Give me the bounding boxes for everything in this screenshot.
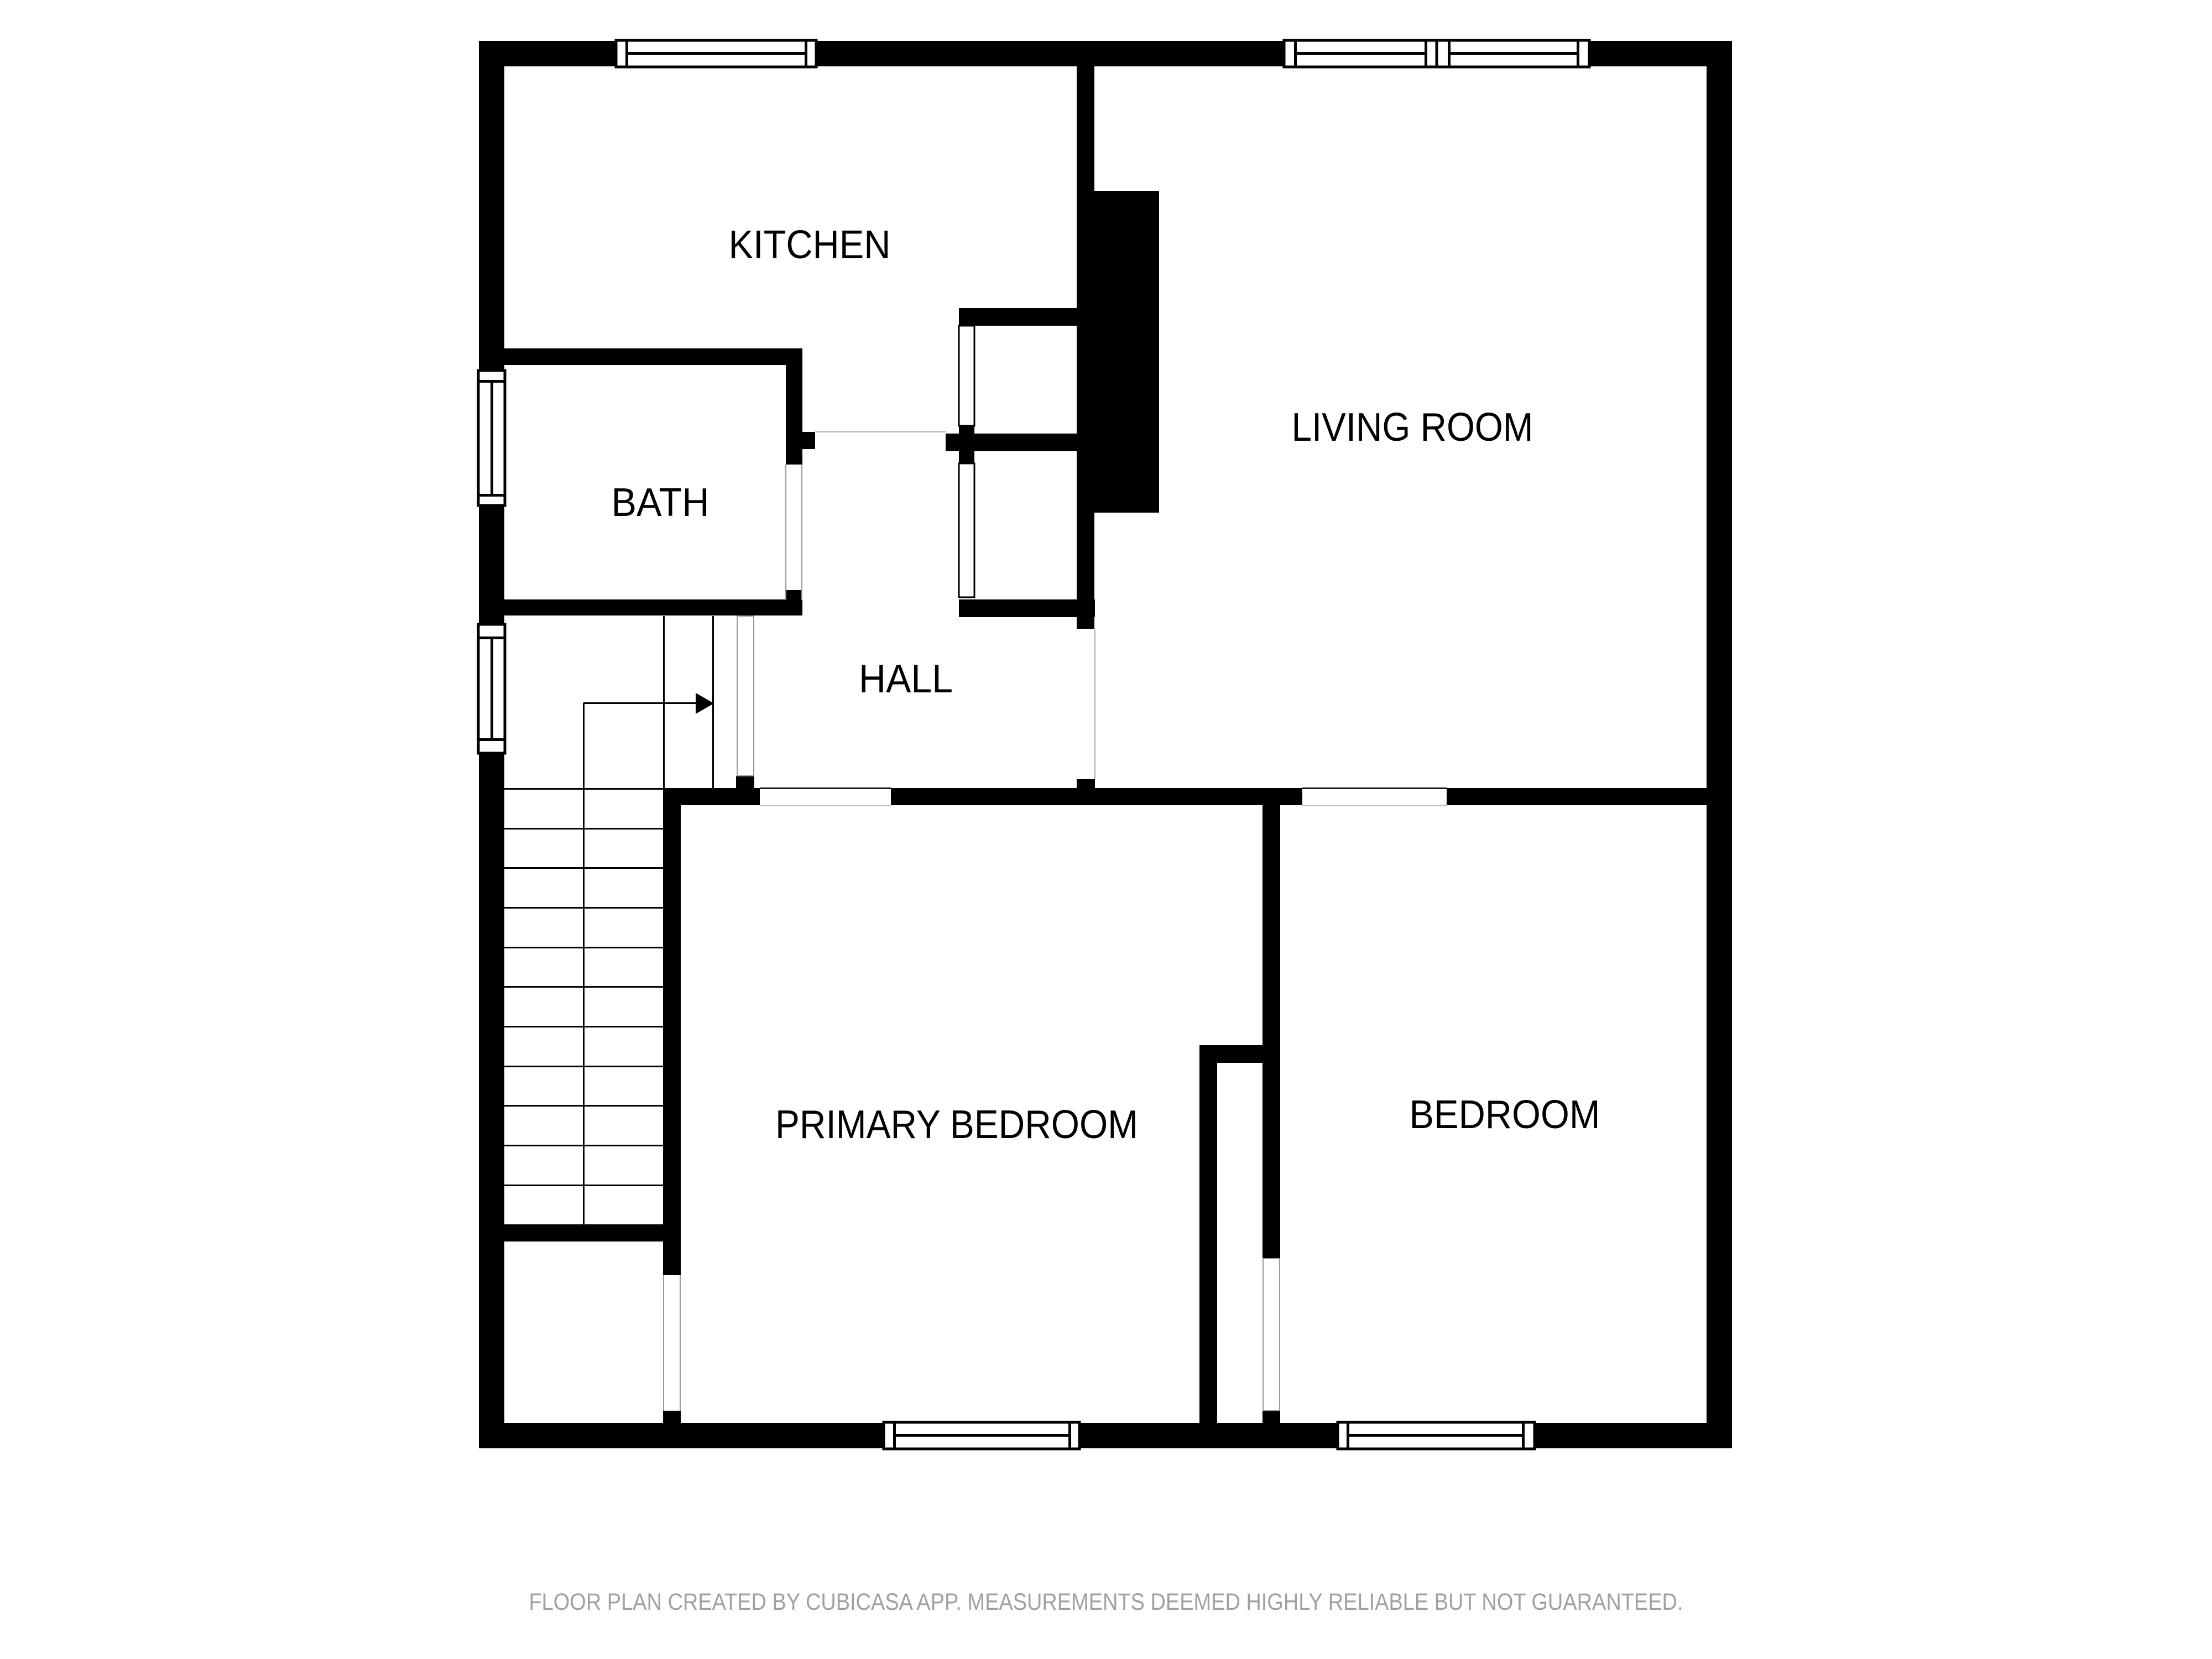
svg-text:BEDROOM: BEDROOM [1410,1093,1600,1137]
svg-text:KITCHEN: KITCHEN [729,223,891,267]
svg-text:FLOOR PLAN CREATED BY CUBICASA: FLOOR PLAN CREATED BY CUBICASA APP. MEAS… [529,1589,1683,1615]
svg-text:PRIMARY BEDROOM: PRIMARY BEDROOM [775,1103,1138,1147]
svg-text:HALL: HALL [859,657,953,701]
svg-text:LIVING ROOM: LIVING ROOM [1292,405,1533,450]
svg-text:BATH: BATH [612,481,709,525]
